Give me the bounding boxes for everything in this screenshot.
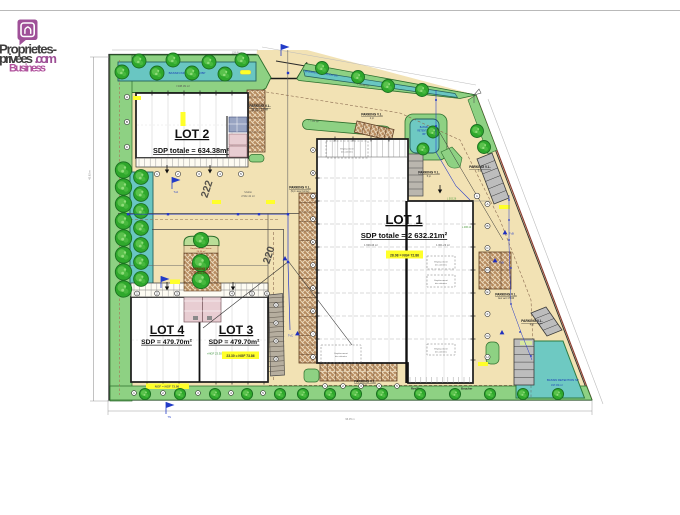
svg-text:PARKING V.L.: PARKING V.L. <box>354 380 376 384</box>
svg-text:20.30 m²: 20.30 m² <box>197 250 206 253</box>
svg-text:SDP = 479.70m²: SDP = 479.70m² <box>141 339 192 346</box>
svg-text:PARKING V.L.: PARKING V.L. <box>521 319 543 323</box>
svg-text:BASSIN: BASSIN <box>420 126 429 129</box>
svg-text:LOT 3: LOT 3 <box>219 323 254 337</box>
svg-text:Emplacement: Emplacement <box>340 148 354 151</box>
svg-text:E: E <box>312 240 314 244</box>
svg-text:H: H <box>312 309 314 313</box>
svg-text:+NGF 23.30: +NGF 23.30 <box>207 352 222 356</box>
svg-text:5 pl.: 5 pl. <box>478 170 483 173</box>
svg-text:Emplacement: Emplacement <box>334 352 348 355</box>
svg-text:F: F <box>487 312 489 316</box>
svg-text:5 pl.: 5 pl. <box>427 175 432 178</box>
svg-text:PARKING V.L.: PARKING V.L. <box>418 171 440 175</box>
svg-text:PARKING V.L.: PARKING V.L. <box>190 267 212 271</box>
svg-text:PARKING V.L.: PARKING V.L. <box>289 186 311 190</box>
svg-text:Emplacement: Emplacement <box>434 279 448 282</box>
svg-text:BASSIN RETENTION SP: BASSIN RETENTION SP <box>547 378 579 382</box>
svg-text:A: A <box>312 148 314 152</box>
svg-text:45.62 m: 45.62 m <box>88 170 92 179</box>
svg-text:l 338.39 m²: l 338.39 m² <box>176 84 190 88</box>
svg-text:SDP totale = 2 632.21m²: SDP totale = 2 632.21m² <box>361 231 448 240</box>
svg-text:TνB: TνB <box>509 232 514 236</box>
svg-text:1 001.23 m²: 1 001.23 m² <box>436 243 450 247</box>
svg-text:128.86 m: 128.86 m <box>232 51 243 55</box>
svg-text:PARKING V.L.: PARKING V.L. <box>361 113 383 117</box>
svg-text:Aux vert 17046: Aux vert 17046 <box>498 297 515 300</box>
svg-text:des attentes: des attentes <box>435 282 448 285</box>
svg-text:Business: Business <box>9 63 46 75</box>
svg-text:NGF = NGF 73.86: NGF = NGF 73.86 <box>155 385 180 389</box>
svg-text:SDP totale = 634.38m²: SDP totale = 634.38m² <box>153 146 229 155</box>
svg-text:A: A <box>126 95 128 99</box>
svg-text:des attentes: des attentes <box>435 351 448 354</box>
svg-text:H: H <box>486 355 488 359</box>
svg-text:28.08 = NGF 72.86: 28.08 = NGF 72.86 <box>390 253 419 257</box>
svg-text:PARKING V.L.: PARKING V.L. <box>469 165 491 169</box>
svg-text:PARKING V.L.: PARKING V.L. <box>495 293 517 297</box>
svg-text:F: F <box>312 263 314 267</box>
svg-text:TνC: TνC <box>288 334 293 338</box>
svg-text:des attentes: des attentes <box>335 355 348 358</box>
svg-text:B: B <box>486 224 488 228</box>
svg-text:23.30 = NGF 73.86: 23.30 = NGF 73.86 <box>226 354 254 358</box>
svg-text:96.35 m: 96.35 m <box>345 417 354 421</box>
svg-text:(8 pl.) + 1 PMR: (8 pl.) + 1 PMR <box>252 109 268 112</box>
svg-text:Voirie: Voirie <box>244 190 252 194</box>
svg-text:TN: TN <box>168 415 172 419</box>
svg-text:des attentes: des attentes <box>341 151 354 154</box>
svg-text:Emplacement: Emplacement <box>434 348 448 351</box>
svg-text:B: B <box>126 120 128 124</box>
svg-text:TνA: TνA <box>174 190 179 194</box>
svg-text:4 521.41 m²: 4 521.41 m² <box>241 194 255 198</box>
svg-text:1 639.46 m²: 1 639.46 m² <box>364 243 378 247</box>
svg-text:A: A <box>486 202 488 206</box>
svg-text:TνB: TνB <box>499 261 504 265</box>
svg-text:4 pl.: 4 pl. <box>530 324 535 327</box>
svg-text:PARKING V.L.: PARKING V.L. <box>249 104 271 108</box>
svg-text:317.03 m²: 317.03 m² <box>551 383 563 387</box>
svg-text:(4 pl. dont 2 PMR): (4 pl. dont 2 PMR) <box>191 272 211 275</box>
svg-text:L 486.12: L 486.12 <box>462 226 472 229</box>
svg-text:BP: BP <box>422 134 426 136</box>
svg-text:LOT 1: LOT 1 <box>385 212 422 227</box>
svg-text:(9 pl. avec borne): (9 pl. avec borne) <box>291 190 310 193</box>
svg-text:des attentes: des attentes <box>435 264 448 267</box>
svg-text:B: B <box>312 171 314 175</box>
svg-text:Boucher: Boucher <box>461 387 473 391</box>
svg-text:2 pl.: 2 pl. <box>370 117 375 120</box>
svg-text:L 502.26: L 502.26 <box>447 198 457 201</box>
svg-text:LOT 2: LOT 2 <box>175 127 210 141</box>
svg-text:E: E <box>486 290 488 294</box>
svg-text:LOT 4: LOT 4 <box>150 323 185 337</box>
svg-text:Emplacement: Emplacement <box>434 261 448 264</box>
svg-text:SDP = 479.70m²: SDP = 479.70m² <box>209 339 260 346</box>
